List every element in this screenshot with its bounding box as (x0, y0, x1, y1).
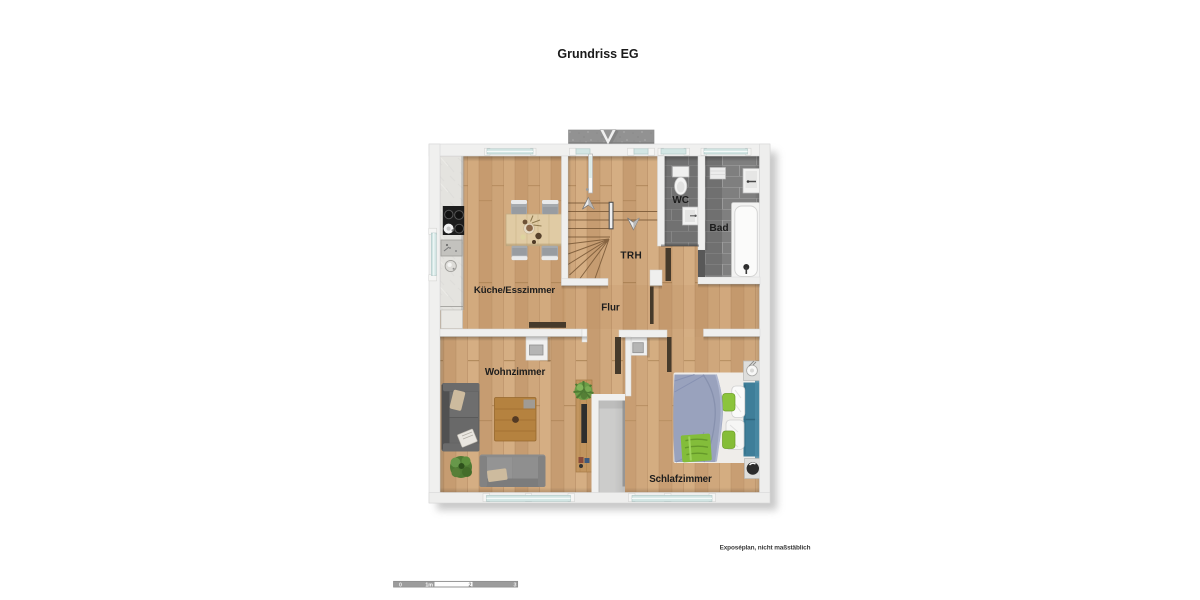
svg-text:3: 3 (514, 582, 517, 588)
svg-text:WC: WC (672, 195, 689, 206)
svg-text:Schlafzimmer: Schlafzimmer (649, 474, 712, 485)
svg-text:1m: 1m (425, 582, 433, 588)
svg-text:Grundriss EG: Grundriss EG (557, 47, 638, 61)
svg-text:Küche/Esszimmer: Küche/Esszimmer (474, 285, 556, 296)
svg-text:Wohnzimmer: Wohnzimmer (485, 367, 546, 378)
svg-text:Exposéplan, nicht maßstäblich: Exposéplan, nicht maßstäblich (720, 545, 811, 552)
svg-text:Bad: Bad (709, 223, 728, 234)
svg-text:TRH: TRH (620, 250, 642, 261)
svg-text:0: 0 (399, 582, 402, 588)
svg-text:Flur: Flur (601, 303, 620, 314)
svg-text:2: 2 (469, 582, 472, 588)
